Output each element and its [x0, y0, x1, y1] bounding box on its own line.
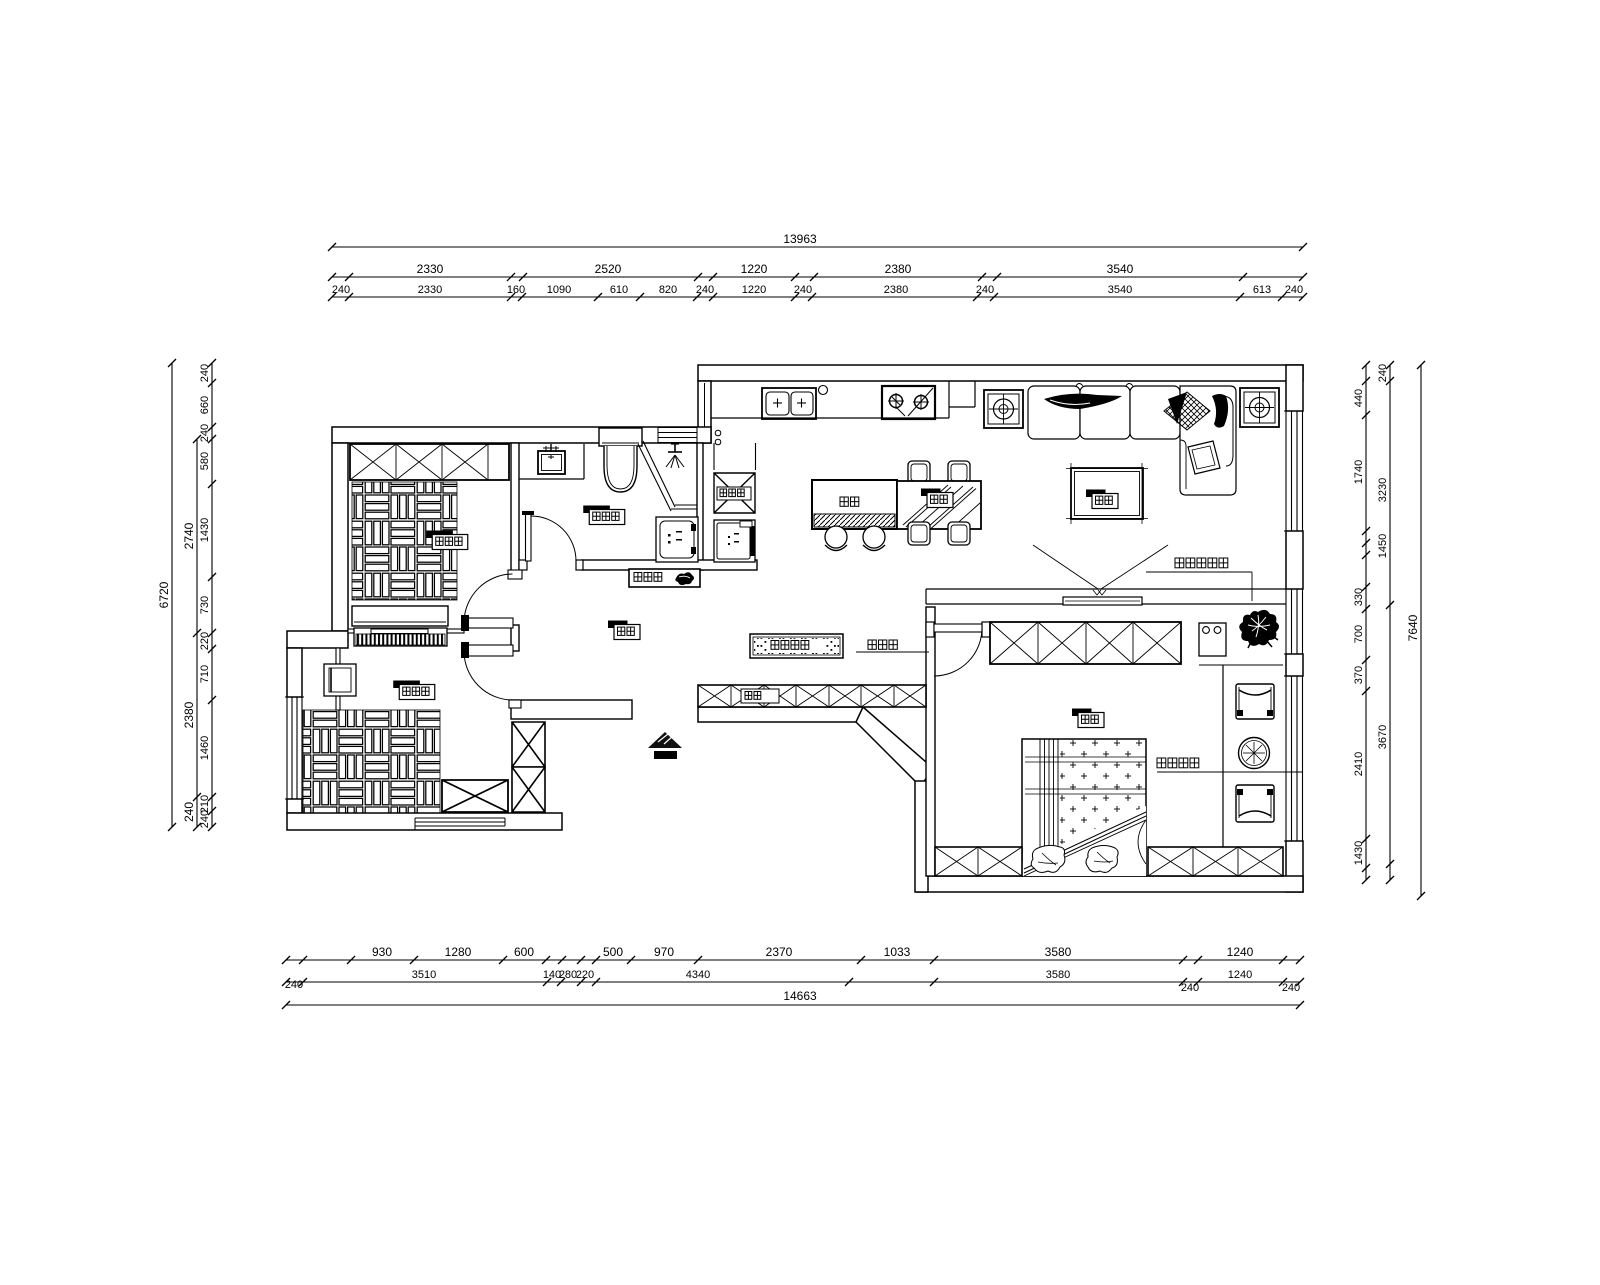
svg-text:580: 580 [199, 452, 211, 470]
svg-text:240: 240 [696, 284, 714, 296]
svg-text:2330: 2330 [418, 284, 442, 296]
svg-text:3510: 3510 [412, 969, 436, 981]
svg-text:7640: 7640 [1406, 614, 1420, 641]
svg-text:660: 660 [199, 396, 211, 414]
svg-text:1450: 1450 [1377, 534, 1389, 558]
svg-text:13963: 13963 [783, 232, 817, 246]
svg-text:240: 240 [182, 802, 196, 822]
svg-text:1240: 1240 [1227, 945, 1254, 959]
svg-text:1460: 1460 [199, 736, 211, 760]
svg-text:2740: 2740 [182, 522, 196, 549]
svg-text:280: 280 [559, 969, 577, 981]
svg-text:240: 240 [199, 424, 211, 442]
svg-text:240: 240 [1377, 364, 1389, 382]
svg-text:2520: 2520 [595, 262, 622, 276]
svg-text:3670: 3670 [1377, 725, 1389, 749]
svg-text:220: 220 [576, 969, 594, 981]
svg-text:600: 600 [514, 945, 534, 959]
svg-text:1430: 1430 [199, 518, 211, 542]
svg-text:330: 330 [1353, 588, 1365, 606]
svg-text:730: 730 [199, 596, 211, 614]
svg-text:160: 160 [507, 284, 525, 296]
svg-text:240: 240 [1285, 284, 1303, 296]
svg-text:220: 220 [199, 632, 211, 650]
svg-text:970: 970 [654, 945, 674, 959]
svg-text:240: 240 [332, 284, 350, 296]
svg-text:3580: 3580 [1045, 945, 1072, 959]
svg-text:3230: 3230 [1377, 478, 1389, 502]
svg-text:1033: 1033 [884, 945, 911, 959]
svg-text:240: 240 [1181, 982, 1199, 994]
svg-text:613: 613 [1253, 284, 1271, 296]
svg-text:3540: 3540 [1107, 262, 1134, 276]
svg-text:3580: 3580 [1046, 969, 1070, 981]
svg-text:14663: 14663 [783, 989, 817, 1003]
svg-text:500: 500 [603, 945, 623, 959]
svg-text:1740: 1740 [1353, 460, 1365, 484]
svg-text:1090: 1090 [547, 284, 571, 296]
svg-text:240: 240 [794, 284, 812, 296]
svg-text:1430: 1430 [1353, 841, 1365, 865]
svg-text:930: 930 [372, 945, 392, 959]
svg-text:1240: 1240 [1228, 969, 1252, 981]
svg-text:240: 240 [199, 810, 211, 828]
svg-text:240: 240 [976, 284, 994, 296]
svg-text:2330: 2330 [417, 262, 444, 276]
svg-text:240: 240 [199, 364, 211, 382]
svg-text:4340: 4340 [686, 969, 710, 981]
svg-text:2370: 2370 [766, 945, 793, 959]
svg-text:240: 240 [285, 979, 303, 991]
svg-text:1280: 1280 [445, 945, 472, 959]
svg-text:2410: 2410 [1353, 752, 1365, 776]
svg-text:1220: 1220 [742, 284, 766, 296]
svg-text:2380: 2380 [182, 701, 196, 728]
svg-text:2380: 2380 [884, 284, 908, 296]
svg-text:3540: 3540 [1108, 284, 1132, 296]
svg-text:2380: 2380 [885, 262, 912, 276]
svg-text:370: 370 [1353, 666, 1365, 684]
svg-text:610: 610 [610, 284, 628, 296]
svg-text:1220: 1220 [741, 262, 768, 276]
svg-text:710: 710 [199, 665, 211, 683]
svg-text:240: 240 [1282, 982, 1300, 994]
svg-text:700: 700 [1353, 625, 1365, 643]
svg-text:6720: 6720 [157, 581, 171, 608]
svg-text:440: 440 [1353, 389, 1365, 407]
svg-text:820: 820 [659, 284, 677, 296]
